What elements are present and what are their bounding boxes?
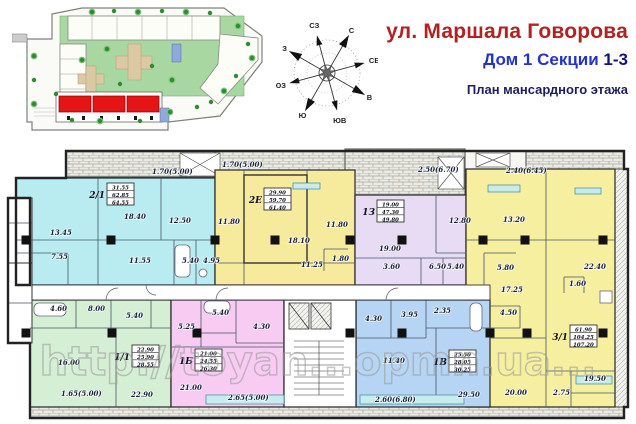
- compass-direction-label: СЗ: [309, 22, 319, 30]
- apartment-area-value: 64.55: [112, 200, 129, 206]
- structural-column: [271, 236, 280, 245]
- tree-icon: [160, 9, 164, 13]
- apartment-code-label: 2Е: [248, 196, 262, 206]
- room-area-label: 18.10: [288, 236, 310, 245]
- tree-icon: [80, 58, 84, 62]
- tree-icon: [150, 64, 154, 68]
- room-area-label: 29.50: [457, 390, 480, 399]
- room-area-label: 1.80: [332, 254, 349, 263]
- compass-arrow: [317, 35, 323, 45]
- room-area-label: 2.40(6.45): [505, 166, 547, 175]
- tree-icon: [105, 47, 109, 51]
- tree-icon: [246, 42, 250, 46]
- room-area-label: 11.80: [218, 217, 240, 226]
- room-area-label: 5.40: [182, 256, 199, 265]
- apartment-code-label: 1З: [362, 208, 375, 218]
- room-area-label: 11.80: [326, 220, 348, 229]
- room-area-label: 18.40: [124, 212, 146, 221]
- room-area-label: 6.50: [429, 262, 446, 271]
- room-area-label: 2.60(6.80): [374, 395, 416, 404]
- tree-icon: [209, 100, 213, 104]
- street-title: ул. Маршала Говорова: [386, 20, 628, 43]
- tree-icon: [234, 74, 238, 78]
- structural-column: [599, 236, 608, 245]
- tree-icon: [195, 105, 199, 109]
- compass-arrow: [289, 51, 302, 61]
- structural-column: [599, 329, 608, 338]
- tree-icon: [112, 9, 116, 13]
- tree-icon: [208, 11, 212, 15]
- apartment-area-value: 62.85: [112, 193, 129, 199]
- structural-column: [346, 236, 355, 245]
- compass-direction-label: С: [349, 26, 355, 35]
- tree-icon: [90, 10, 94, 14]
- room-area-label: 12.50: [169, 216, 191, 225]
- room-area-label: 8.00: [88, 304, 105, 313]
- compass-direction-label: Ю: [299, 111, 307, 120]
- room-area-label: 7.55: [51, 252, 68, 261]
- structural-column: [521, 236, 530, 245]
- room-area-label: 3.95: [401, 310, 418, 319]
- room-area-label: 5.25: [178, 322, 195, 331]
- bathtub: [470, 303, 482, 331]
- structural-column: [486, 329, 495, 338]
- structural-column: [398, 329, 407, 338]
- room-area-label: 20.00: [504, 388, 527, 397]
- watermark: http://toyan...opmn.ua...: [40, 339, 597, 385]
- apartment-code-label: 2/1: [88, 191, 105, 201]
- room-area-label: 5.80: [497, 263, 514, 272]
- tree-icon: [32, 54, 36, 58]
- tree-icon: [138, 119, 142, 123]
- tree-icon: [32, 78, 36, 82]
- compass-direction-label: З: [282, 44, 287, 53]
- apartment-area-value: 47.30: [382, 210, 399, 216]
- room-area-label: 5.40: [447, 262, 464, 271]
- tree-icon: [98, 119, 102, 123]
- room-area-label: 17.25: [501, 285, 523, 294]
- room-area-label: 13.45: [50, 228, 72, 237]
- site-building-north: [68, 16, 220, 40]
- room-area-label: 4.50: [500, 308, 517, 317]
- room-area-label: 4.60: [50, 304, 67, 313]
- room-area-label: 1.60: [569, 279, 586, 288]
- structural-column: [22, 236, 31, 245]
- apartment-area-value: 61.90: [575, 328, 592, 334]
- toilet: [199, 269, 207, 277]
- room-area-label: 2.75: [552, 388, 570, 397]
- room-area-label: 4.30: [365, 314, 382, 323]
- compass-direction-label: СВ: [369, 56, 378, 65]
- room-area-label: 5.40: [126, 311, 143, 320]
- room-area-label: 3.60: [383, 262, 400, 271]
- structural-column: [211, 236, 220, 245]
- tree-icon: [250, 56, 254, 60]
- structural-column: [479, 236, 488, 245]
- room-area-label: 4.95: [203, 256, 220, 265]
- tree-icon: [222, 89, 226, 93]
- apartment-area-value: 49.80: [382, 217, 399, 223]
- compass-arrow: [339, 35, 349, 48]
- tree-icon: [168, 110, 172, 114]
- room-area-label: 13.20: [503, 215, 525, 224]
- structural-column: [523, 329, 532, 338]
- floorplan-page: { "header": { "street": "ул. Маршала Гов…: [0, 0, 636, 424]
- floor-plan-drawing: 1.70(5.00)13.4518.4012.507.5511.555.404.…: [6, 143, 630, 421]
- apartment-area-value: 31.55: [112, 186, 129, 192]
- sections-number: 1-3: [603, 50, 628, 69]
- plan-subtitle: План мансардного этажа: [386, 83, 628, 97]
- room-area-label: 12.80: [449, 216, 471, 225]
- tree-icon: [54, 92, 58, 96]
- compass-direction-label: ЮВ: [333, 116, 347, 124]
- tree-icon: [236, 24, 240, 28]
- room-area-label: 11.55: [129, 256, 151, 265]
- room-area-label: 2.35: [433, 306, 451, 315]
- room-area-label: 22.40: [583, 262, 606, 271]
- wind-rose-compass: ССВВЮВЮЮЗЗСЗ: [276, 22, 378, 124]
- tree-icon: [184, 10, 188, 14]
- room-area-label: 19.00: [379, 244, 401, 253]
- room-area-label: 2.65(5.00): [227, 393, 269, 402]
- room-area-label: 22.90: [130, 390, 153, 399]
- house-title: Дом 1 Секции 1-3: [386, 51, 628, 70]
- compass-arrow: [352, 85, 365, 95]
- room-area-label: 1.70(5.00): [152, 167, 193, 176]
- site-road-arm: [12, 34, 27, 42]
- structural-column: [107, 236, 116, 245]
- room-area-label: 4.30: [253, 322, 270, 331]
- tree-icon: [136, 10, 140, 14]
- site-plan-thumbnail: [12, 4, 265, 140]
- title-block: ул. Маршала Говорова Дом 1 Секции 1-3 Пл…: [386, 20, 628, 97]
- compass-arrow: [354, 63, 364, 69]
- washer: [600, 291, 612, 303]
- tree-icon: [32, 102, 36, 106]
- tree-icon: [118, 82, 122, 86]
- apartment-area-value: 61.40: [269, 205, 286, 211]
- structural-column: [22, 329, 31, 338]
- apartment-area-value: 19.00: [382, 203, 399, 209]
- room-area-label: 2.50(6.70): [417, 165, 459, 174]
- structural-column: [108, 329, 117, 338]
- site-highlighted-sections: [59, 96, 159, 112]
- compass-arrow: [289, 78, 299, 84]
- site-blue-block-1: [172, 44, 181, 62]
- tree-icon: [170, 78, 174, 82]
- room-area-label: 1.70(5.00): [222, 160, 263, 169]
- compass-direction-label: В: [367, 93, 373, 102]
- room-area-label: 11.25: [301, 260, 323, 269]
- room-area-label: 1.65(5.00): [61, 389, 102, 398]
- apartment-area-value: 29.90: [268, 191, 286, 197]
- compass-direction-label: ЮЗ: [276, 81, 286, 90]
- room-area-label: 5.40: [212, 308, 229, 317]
- compass-arrow: [305, 98, 315, 111]
- apartment-area-value: 59.70: [269, 198, 286, 204]
- corridor-region: [30, 285, 490, 300]
- structural-column: [346, 329, 355, 338]
- tree-icon: [70, 118, 74, 122]
